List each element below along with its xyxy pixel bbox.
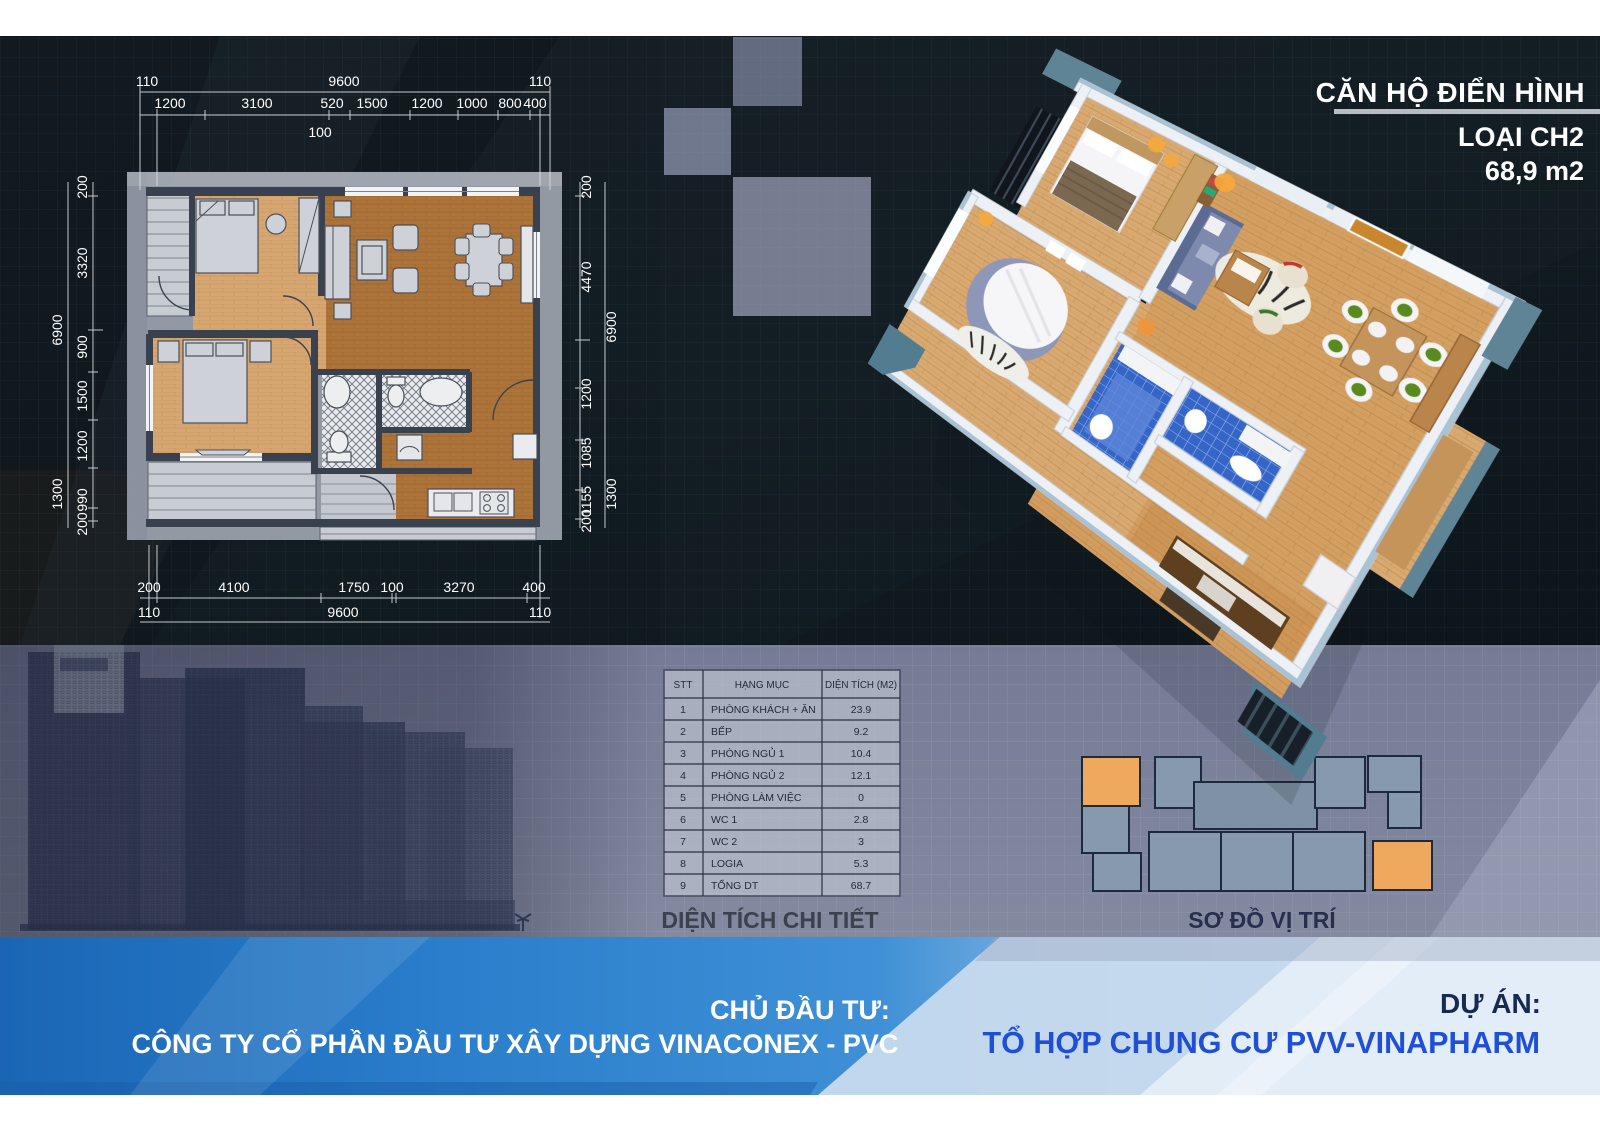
svg-text:3320: 3320 [74, 247, 90, 278]
svg-text:200: 200 [74, 512, 90, 536]
svg-text:400: 400 [523, 95, 547, 111]
svg-text:8: 8 [680, 858, 686, 870]
svg-text:PHÒNG KHÁCH + ĂN: PHÒNG KHÁCH + ĂN [711, 703, 816, 716]
svg-text:110: 110 [138, 604, 161, 620]
svg-text:DIỆN TÍCH (M2): DIỆN TÍCH (M2) [825, 678, 897, 691]
svg-text:1300: 1300 [603, 478, 619, 509]
svg-text:3: 3 [858, 836, 864, 848]
svg-text:3100: 3100 [241, 95, 272, 111]
svg-text:5: 5 [680, 792, 686, 804]
svg-text:1200: 1200 [154, 95, 185, 111]
svg-text:100: 100 [308, 124, 332, 140]
svg-text:9: 9 [680, 880, 686, 892]
svg-text:6900: 6900 [49, 314, 65, 345]
svg-text:1300: 1300 [49, 478, 65, 509]
svg-text:1500: 1500 [74, 380, 90, 411]
svg-text:DIỆN TÍCH CHI TIẾT: DIỆN TÍCH CHI TIẾT [661, 906, 878, 933]
svg-text:TỔ HỢP CHUNG CƯ PVV-VINAPHARM: TỔ HỢP CHUNG CƯ PVV-VINAPHARM [983, 1024, 1540, 1060]
svg-text:1: 1 [680, 704, 686, 716]
svg-text:520: 520 [320, 95, 344, 111]
svg-text:LOGIA: LOGIA [711, 858, 743, 870]
svg-text:HẠNG MỤC: HẠNG MỤC [735, 680, 789, 691]
svg-text:800: 800 [498, 95, 522, 111]
svg-text:400: 400 [522, 579, 546, 595]
svg-text:CHỦ ĐẦU TƯ:: CHỦ ĐẦU TƯ: [710, 993, 890, 1025]
svg-text:23.9: 23.9 [851, 704, 872, 716]
svg-text:WC 2: WC 2 [711, 836, 737, 848]
svg-text:PHÒNG NGỦ 2: PHÒNG NGỦ 2 [711, 769, 785, 782]
svg-text:110: 110 [136, 73, 159, 89]
svg-text:1500: 1500 [356, 95, 387, 111]
svg-text:2: 2 [680, 726, 686, 738]
svg-text:1000: 1000 [456, 95, 487, 111]
svg-text:68.7: 68.7 [851, 880, 872, 892]
svg-text:200: 200 [578, 175, 594, 199]
svg-text:6900: 6900 [603, 311, 619, 342]
svg-text:BẾP: BẾP [711, 725, 732, 738]
svg-text:4: 4 [680, 770, 686, 782]
svg-text:5.3: 5.3 [854, 858, 869, 870]
svg-text:1200: 1200 [74, 430, 90, 461]
svg-text:0: 0 [858, 792, 864, 804]
svg-text:9600: 9600 [328, 73, 359, 89]
svg-text:12.1: 12.1 [851, 770, 872, 782]
svg-text:1200: 1200 [578, 378, 594, 409]
svg-text:TỔNG DT: TỔNG DT [711, 879, 759, 892]
svg-text:10.4: 10.4 [851, 748, 872, 760]
svg-text:1200: 1200 [411, 95, 442, 111]
svg-text:110: 110 [529, 73, 552, 89]
svg-text:110: 110 [529, 604, 552, 620]
svg-text:CÔNG TY CỔ PHẦN ĐẦU TƯ XÂY DỰN: CÔNG TY CỔ PHẦN ĐẦU TƯ XÂY DỰNG VINACONE… [132, 1028, 899, 1059]
svg-text:9600: 9600 [327, 604, 358, 620]
svg-text:PHÒNG LÀM VIỆC: PHÒNG LÀM VIỆC [711, 791, 802, 804]
svg-text:4100: 4100 [218, 579, 249, 595]
svg-text:1750: 1750 [338, 579, 369, 595]
svg-text:200: 200 [578, 509, 594, 533]
svg-text:9.2: 9.2 [854, 726, 869, 738]
svg-text:2.8: 2.8 [854, 814, 869, 826]
svg-text:990: 990 [74, 488, 90, 512]
svg-text:100: 100 [380, 579, 404, 595]
svg-text:200: 200 [74, 175, 90, 199]
svg-text:4470: 4470 [578, 261, 594, 292]
svg-text:WC 1: WC 1 [711, 814, 737, 826]
svg-text:3270: 3270 [443, 579, 474, 595]
svg-text:7: 7 [680, 836, 686, 848]
svg-text:900: 900 [74, 335, 90, 359]
svg-text:3: 3 [680, 748, 686, 760]
svg-text:PHÒNG NGỦ 1: PHÒNG NGỦ 1 [711, 747, 785, 760]
svg-text:6: 6 [680, 814, 686, 826]
svg-text:1085: 1085 [578, 437, 594, 468]
svg-text:STT: STT [674, 680, 693, 691]
svg-text:200: 200 [137, 579, 161, 595]
